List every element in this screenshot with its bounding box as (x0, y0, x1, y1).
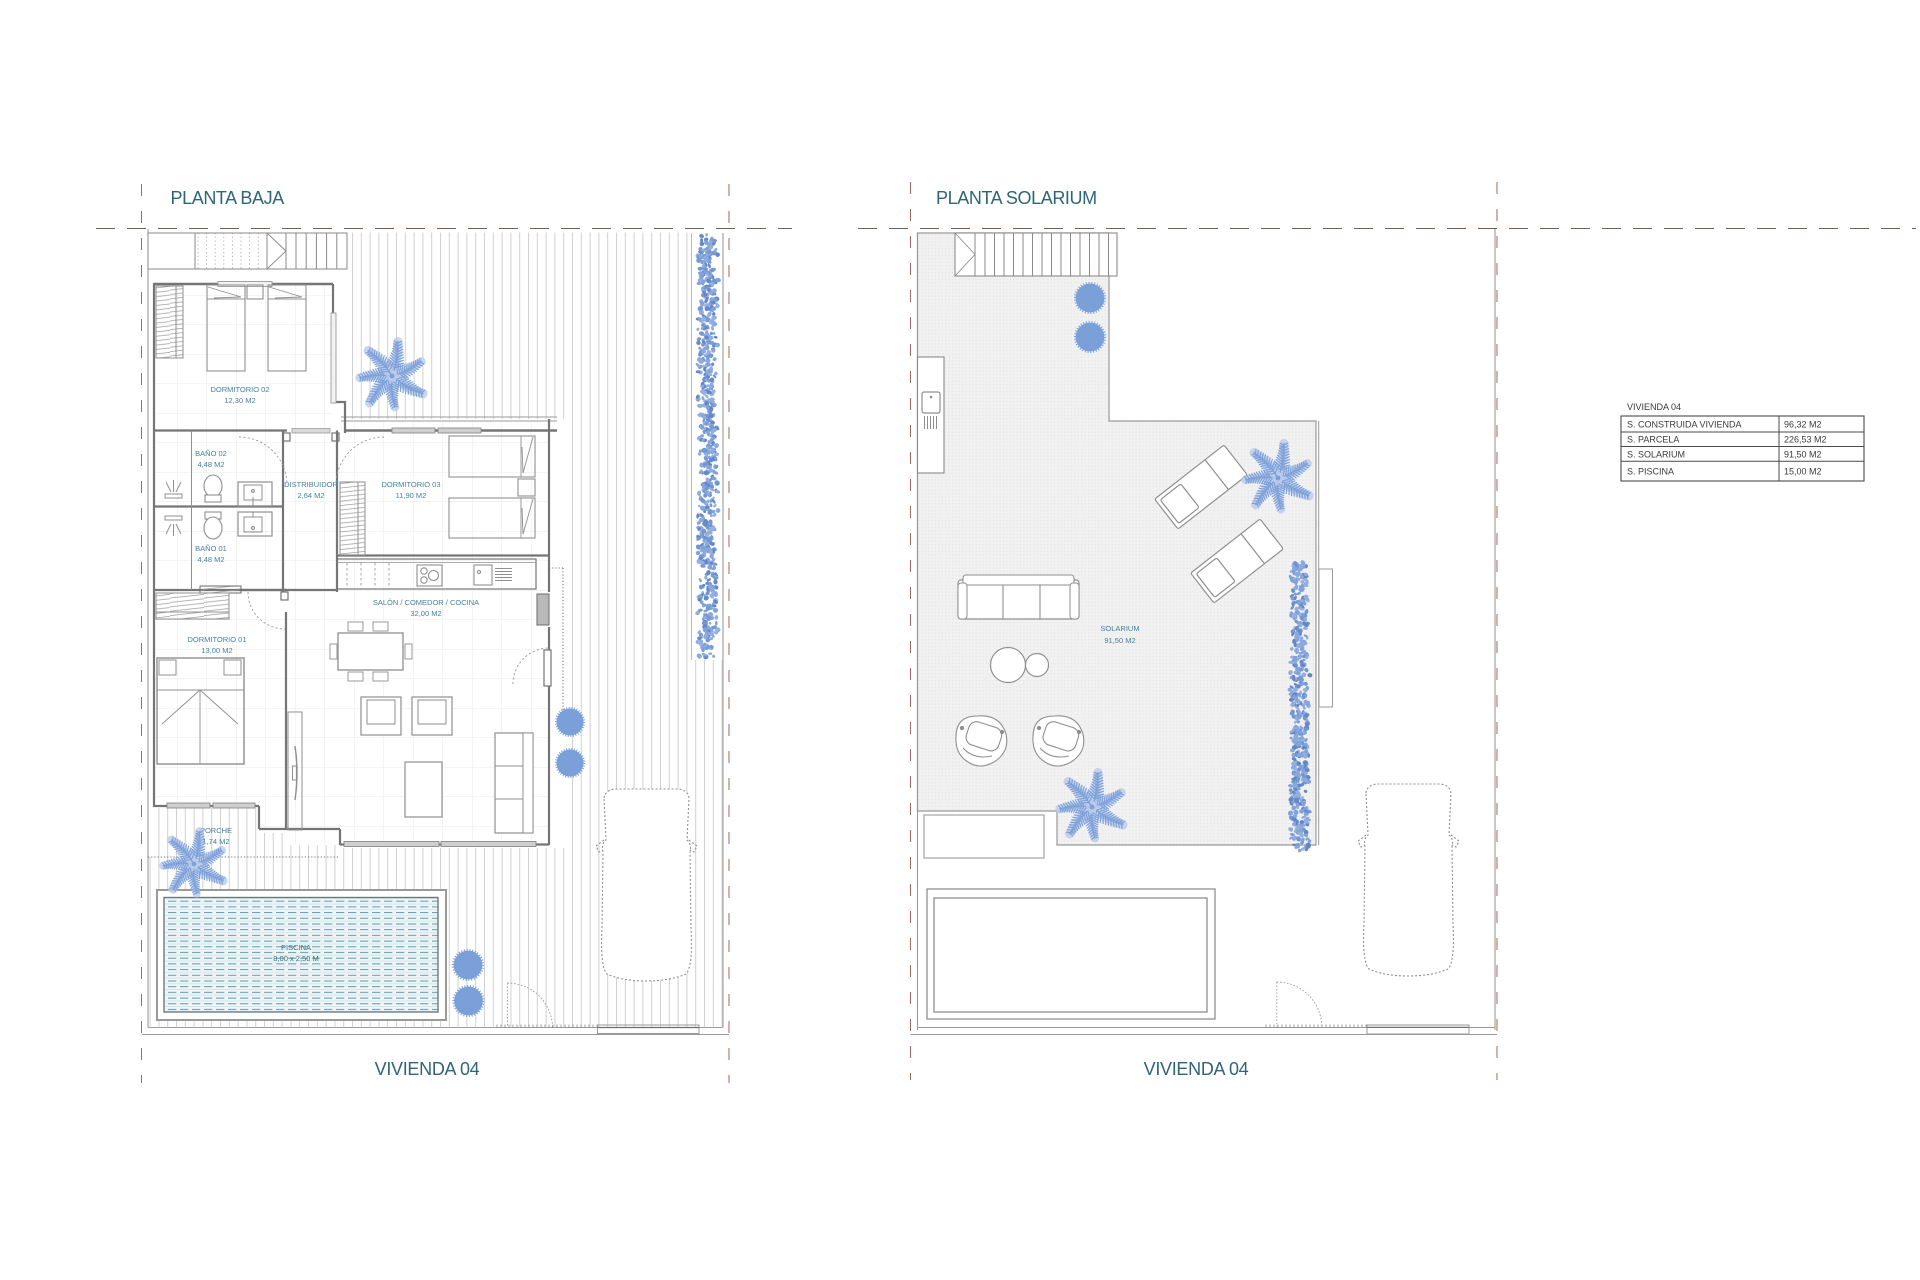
svg-text:VIVIENDA 04: VIVIENDA 04 (1144, 1059, 1249, 1079)
svg-text:S. SOLARIUM: S. SOLARIUM (1627, 450, 1685, 460)
svg-text:PORCHE: PORCHE (200, 826, 232, 835)
svg-text:1,74 M2: 1,74 M2 (202, 837, 229, 846)
svg-text:4,48 M2: 4,48 M2 (197, 555, 224, 564)
svg-text:S. CONSTRUIDA VIVIENDA: S. CONSTRUIDA VIVIENDA (1627, 420, 1742, 430)
svg-text:VIVIENDA 04: VIVIENDA 04 (375, 1059, 480, 1079)
svg-text:BAÑO 02: BAÑO 02 (195, 449, 227, 458)
svg-text:32,00 M2: 32,00 M2 (410, 609, 441, 618)
svg-text:91,50 M2: 91,50 M2 (1784, 450, 1822, 460)
svg-text:SOLARIUM: SOLARIUM (1100, 624, 1139, 633)
svg-text:4,48 M2: 4,48 M2 (197, 460, 224, 469)
svg-text:13,00 M2: 13,00 M2 (201, 646, 232, 655)
svg-text:91,50 M2: 91,50 M2 (1104, 636, 1135, 645)
svg-text:S. PISCINA: S. PISCINA (1627, 467, 1674, 477)
svg-text:PLANTA BAJA: PLANTA BAJA (171, 188, 285, 208)
svg-text:VIVIENDA 04: VIVIENDA 04 (1627, 402, 1681, 412)
svg-text:BAÑO 01: BAÑO 01 (195, 544, 227, 553)
svg-text:2,64 M2: 2,64 M2 (297, 491, 324, 500)
svg-text:15,00 M2: 15,00 M2 (1784, 467, 1822, 477)
svg-text:8,00 x 2,50 M: 8,00 x 2,50 M (273, 954, 318, 963)
svg-text:11,90 M2: 11,90 M2 (396, 491, 427, 500)
svg-text:DORMITORIO 02: DORMITORIO 02 (210, 385, 269, 394)
svg-text:DORMITORIO 01: DORMITORIO 01 (187, 635, 246, 644)
svg-text:PISCINA: PISCINA (281, 943, 311, 952)
svg-text:96,32 M2: 96,32 M2 (1784, 420, 1822, 430)
svg-text:12,30 M2: 12,30 M2 (224, 396, 255, 405)
svg-text:S. PARCELA: S. PARCELA (1627, 435, 1679, 445)
svg-text:226,53 M2: 226,53 M2 (1784, 435, 1827, 445)
svg-text:DISTRIBUIDOR: DISTRIBUIDOR (284, 480, 338, 489)
svg-text:PLANTA SOLARIUM: PLANTA SOLARIUM (936, 188, 1097, 208)
svg-text:SALÓN / COMEDOR / COCINA: SALÓN / COMEDOR / COCINA (373, 598, 479, 607)
svg-text:DORMITORIO 03: DORMITORIO 03 (381, 480, 440, 489)
